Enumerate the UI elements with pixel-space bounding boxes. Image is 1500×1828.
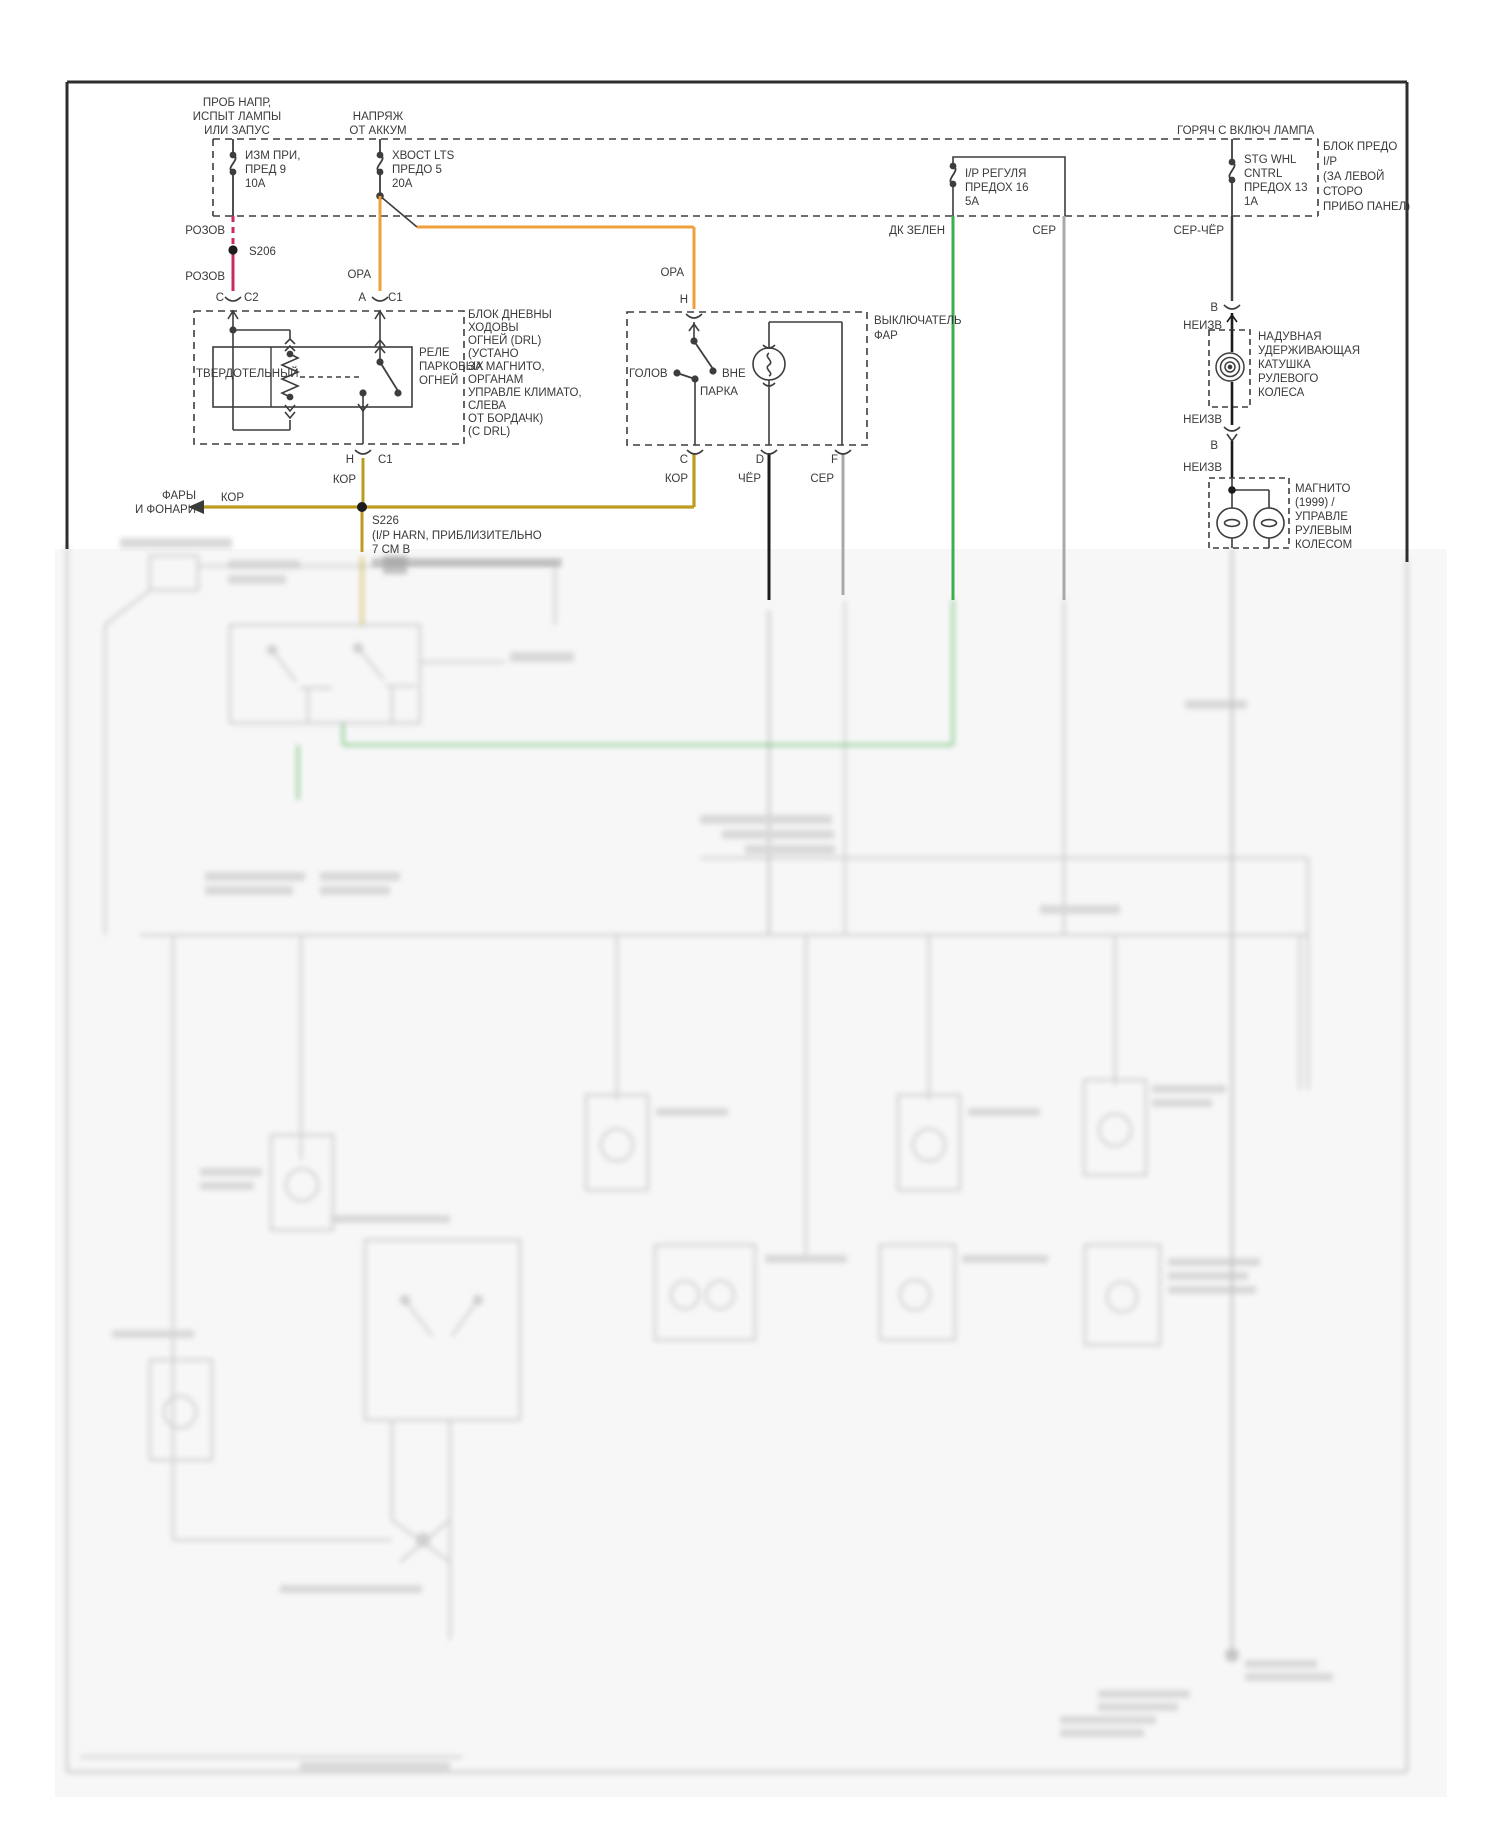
fuse-label-line: STG WHL bbox=[1244, 154, 1297, 166]
clockspring-caption-line: КОЛЕСА bbox=[1258, 387, 1305, 399]
pin-c-switch: C bbox=[680, 454, 688, 466]
radio-caption-line: РУЛЕВЫМ bbox=[1295, 525, 1352, 537]
pin-h-bottom: H bbox=[346, 454, 354, 466]
splice-s206: S206 bbox=[228, 245, 275, 258]
fuse-block-caption: БЛОК ПРЕДО I/P (ЗА ЛЕВОЙ СТОРО ПРИБО ПАН… bbox=[1323, 141, 1410, 213]
rail-battery-line1: НАПРЯЖ bbox=[353, 111, 404, 123]
clockspring-caption-line: УДЕРЖИВАЮЩАЯ bbox=[1258, 345, 1360, 357]
pin-b-top: В bbox=[1210, 302, 1218, 314]
lower-faded-region bbox=[55, 549, 1447, 1797]
rail-battery-line2: ОТ АККУМ bbox=[349, 125, 406, 137]
fuse-block-caption-line: СТОРО bbox=[1323, 186, 1363, 198]
drl-caption-line: ХОДОВЫ bbox=[468, 322, 519, 334]
pin-c1-bottom: C1 bbox=[378, 454, 393, 466]
connector-socket-icon bbox=[372, 297, 388, 301]
drl-caption-line: ОГНЕЙ (DRL) bbox=[468, 334, 541, 347]
pin-c1: C1 bbox=[388, 292, 403, 304]
label-black-d: ЧЁР bbox=[738, 473, 761, 485]
fuse-label-line: ПРЕДО 5 bbox=[392, 164, 442, 176]
blurred-note-bar bbox=[372, 558, 562, 567]
splice-s206-label: S206 bbox=[249, 246, 276, 258]
fuse-block-caption-line: БЛОК ПРЕДО bbox=[1323, 141, 1397, 153]
label-dk-green: ДК ЗЕЛЕН bbox=[889, 225, 945, 237]
fuse-label-line: ПРЕДОХ 16 bbox=[965, 182, 1028, 194]
radio-caption-line: КОЛЕСОМ bbox=[1295, 539, 1352, 551]
radio-block: МАГНИТО (1999) / УПРАВЛЕ РУЛЕВЫМ КОЛЕСОМ bbox=[1209, 478, 1352, 551]
rail-left-feed-line2: ИСПЫТ ЛАМПЫ bbox=[193, 111, 281, 123]
drl-caption-line: ОРГАНАМ bbox=[468, 374, 523, 386]
fuse-meter-fuse9: ИЗМ ПРИ, ПРЕД 9 10А bbox=[230, 139, 301, 216]
clockspring-block: В НЕИЗВ НАДУВНАЯ УДЕРЖИВАЮЩАЯ КАТУШКА РУ… bbox=[1183, 302, 1360, 478]
fuse-label-line: 5А bbox=[965, 196, 979, 208]
pin-c: C bbox=[216, 292, 224, 304]
pin-a: A bbox=[358, 292, 366, 304]
clockspring-spiral-icon bbox=[1216, 353, 1244, 381]
fuse-block-caption-line: I/P bbox=[1323, 156, 1337, 168]
connector-socket-icon bbox=[1224, 305, 1240, 309]
fuse-label-line: ПРЕДОХ 13 bbox=[1244, 182, 1307, 194]
switch-lamp-icon bbox=[753, 322, 842, 445]
drl-caption-line: БЛОК ДНЕВНЫ bbox=[468, 309, 552, 321]
switch-blade bbox=[694, 341, 713, 369]
pin-unk-mid: НЕИЗВ bbox=[1183, 414, 1222, 426]
fuse-label-line: I/P РЕГУЛЯ bbox=[965, 168, 1026, 180]
drl-caption-line: (С DRL) bbox=[468, 426, 510, 438]
label-orange-h: ОРА bbox=[660, 267, 684, 279]
clockspring-caption-line: НАДУВНАЯ bbox=[1258, 331, 1322, 343]
label-brown-arrow: КОР bbox=[221, 492, 245, 504]
relay-switch bbox=[358, 358, 402, 444]
splice-dot bbox=[357, 502, 367, 512]
radio-caption-line: МАГНИТО bbox=[1295, 483, 1351, 495]
headlamp-switch-block: H ГОЛОВ ВНЕ ПАРКА C D F ВЫК bbox=[627, 294, 962, 466]
s226-note-line: 7 СМ В bbox=[372, 544, 411, 556]
pin-unk-low: НЕИЗВ bbox=[1183, 462, 1222, 474]
fuse-block-caption-line: ПРИБО ПАНЕЛ) bbox=[1323, 201, 1410, 213]
label-brown-c: КОР bbox=[665, 473, 689, 485]
drl-caption-line: ЗА МАГНИТО, bbox=[468, 361, 545, 373]
wiring-diagram-page: ПРОБ НАПР, ИСПЫТ ЛАМПЫ ИЛИ ЗАПУС НАПРЯЖ … bbox=[0, 0, 1500, 1828]
fuse-label-line: ХВОСТ LTS bbox=[392, 150, 455, 162]
rail-left-feed-line3: ИЛИ ЗАПУС bbox=[204, 125, 270, 137]
clockspring-caption-line: КАТУШКА bbox=[1258, 359, 1311, 371]
headlamp-switch-caption-line: ФАР bbox=[874, 330, 898, 342]
radio-caption-line: (1999) / bbox=[1295, 497, 1335, 509]
switch-pos-off: ВНЕ bbox=[722, 368, 746, 380]
fuse-tail-lts: ХВОСТ LTS ПРЕДО 5 20А bbox=[376, 139, 454, 227]
label-orange-a: ОРА bbox=[347, 269, 371, 281]
label-gray-bus: СЕР bbox=[1032, 225, 1056, 237]
fuse-stg-whl: STG WHL CNTRL ПРЕДОХ 13 1А bbox=[1229, 139, 1308, 216]
switch-pos-head: ГОЛОВ bbox=[629, 368, 668, 380]
relay-label-line: ОГНЕЙ bbox=[419, 374, 458, 387]
rail-left-feed-line1: ПРОБ НАПР, bbox=[203, 97, 271, 109]
drl-block: C C2 A C1 ТВЕРДОТЕЛЬНЫЙ РЕЛЕ ПАРКОВЫХ bbox=[194, 292, 582, 466]
fuse-block-caption-line: (ЗА ЛЕВОЙ bbox=[1323, 170, 1384, 183]
drl-caption-line: ОТ БОРДАЧК) bbox=[468, 413, 543, 425]
connector-socket-icon bbox=[355, 450, 371, 454]
connector-socket-icon bbox=[1224, 427, 1240, 441]
fuse-label-line: 10А bbox=[245, 178, 266, 190]
drl-caption-line: (УСТАНО bbox=[468, 348, 519, 360]
label-gray-black: СЕР-ЧЁР bbox=[1174, 225, 1225, 237]
pin-b-mid: В bbox=[1210, 440, 1218, 452]
arrow-out-line2: И ФОНАРИ bbox=[135, 504, 196, 516]
wire-colour-labels: РОЗОВ РОЗОВ ОРА ОРА ДК ЗЕЛЕН СЕР СЕР-ЧЁР… bbox=[185, 225, 1224, 504]
s226-label: S226 bbox=[372, 515, 399, 527]
fuse-label-line: 20А bbox=[392, 178, 413, 190]
arrow-out-line1: ФАРЫ bbox=[162, 490, 196, 502]
pin-c2: C2 bbox=[244, 292, 259, 304]
drl-caption: БЛОК ДНЕВНЫ ХОДОВЫ ОГНЕЙ (DRL) (УСТАНО З… bbox=[468, 309, 582, 438]
coil-chevron-icon bbox=[285, 339, 295, 351]
clockspring-caption-line: РУЛЕВОГО bbox=[1258, 373, 1318, 385]
pin-f-switch: F bbox=[831, 454, 838, 466]
wiring-diagram: ПРОБ НАПР, ИСПЫТ ЛАМПЫ ИЛИ ЗАПУС НАПРЯЖ … bbox=[0, 0, 1500, 1828]
label-brown-h: КОР bbox=[333, 474, 357, 486]
switch-pos-park: ПАРКА bbox=[700, 386, 738, 398]
pin-h-switch: H bbox=[680, 294, 688, 306]
fuse-label-line: CNTRL bbox=[1244, 168, 1283, 180]
fuse-ip-dimmer: I/P РЕГУЛЯ ПРЕДОХ 16 5А bbox=[950, 157, 1065, 216]
wires bbox=[204, 196, 1232, 600]
label-gray-f: СЕР bbox=[810, 473, 834, 485]
connector-socket-icon bbox=[225, 297, 241, 301]
drl-caption-line: УПРАВЛЕ КЛИМАТО, bbox=[468, 387, 582, 399]
s226-note-line: (I/P HARN, ПРИБЛИЗИТЕЛЬНО bbox=[372, 530, 542, 542]
fuse-label-line: ИЗМ ПРИ, bbox=[245, 150, 300, 162]
rail-hot-in-run: ГОРЯЧ С ВКЛЮЧ ЛАМПА bbox=[1177, 125, 1315, 137]
pin-unk-top: НЕИЗВ bbox=[1183, 320, 1222, 332]
power-rail-labels: ПРОБ НАПР, ИСПЫТ ЛАМПЫ ИЛИ ЗАПУС НАПРЯЖ … bbox=[193, 97, 1315, 137]
wire-brown-main bbox=[204, 453, 694, 507]
connector-socket-icon bbox=[686, 314, 702, 318]
fuse-label-line: ПРЕД 9 bbox=[245, 164, 286, 176]
drl-caption-line: СЛЕВА bbox=[468, 400, 506, 412]
radio-caption-line: УПРАВЛЕ bbox=[1295, 511, 1348, 523]
connector-socket-icon bbox=[687, 450, 703, 454]
label-pink-upper: РОЗОВ bbox=[185, 225, 225, 237]
splice-dot bbox=[228, 245, 237, 254]
lamp-icon bbox=[1217, 508, 1284, 548]
pin-d-switch: D bbox=[756, 454, 764, 466]
relay-label-line: РЕЛЕ bbox=[419, 347, 450, 359]
label-pink-lower: РОЗОВ bbox=[185, 271, 225, 283]
fuse-label-line: 1А bbox=[1244, 196, 1258, 208]
headlamp-switch-caption-line: ВЫКЛЮЧАТЕЛЬ bbox=[874, 315, 962, 327]
wire-orange-h bbox=[417, 227, 694, 309]
